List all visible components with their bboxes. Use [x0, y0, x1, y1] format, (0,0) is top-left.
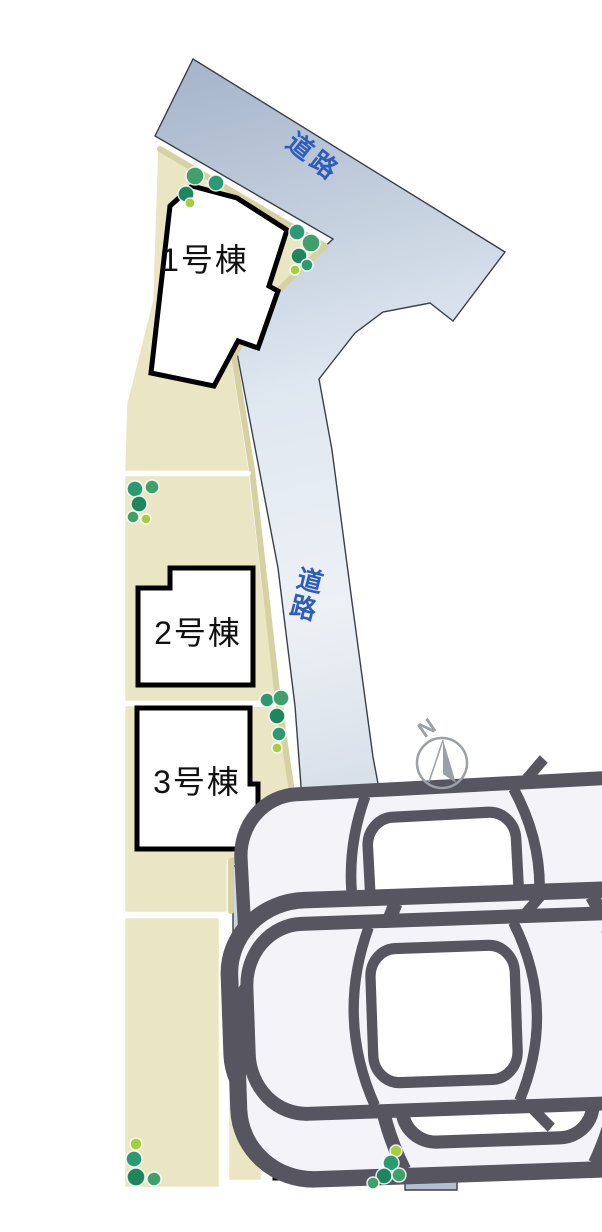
north-needle-icon [443, 740, 456, 783]
site-plan-drawing: 1号棟 2号棟 3号棟 5号棟 道路 道路 [0, 0, 602, 1232]
site-plan: 1号棟 2号棟 3号棟 5号棟 道路 道路 [0, 0, 602, 1232]
car-icon [244, 889, 602, 1138]
building-1-label: 1号棟 [161, 242, 249, 278]
building-2-label: 2号棟 [154, 615, 242, 651]
building-3-label: 3号棟 [153, 764, 241, 800]
compass-icon: N [413, 713, 467, 788]
